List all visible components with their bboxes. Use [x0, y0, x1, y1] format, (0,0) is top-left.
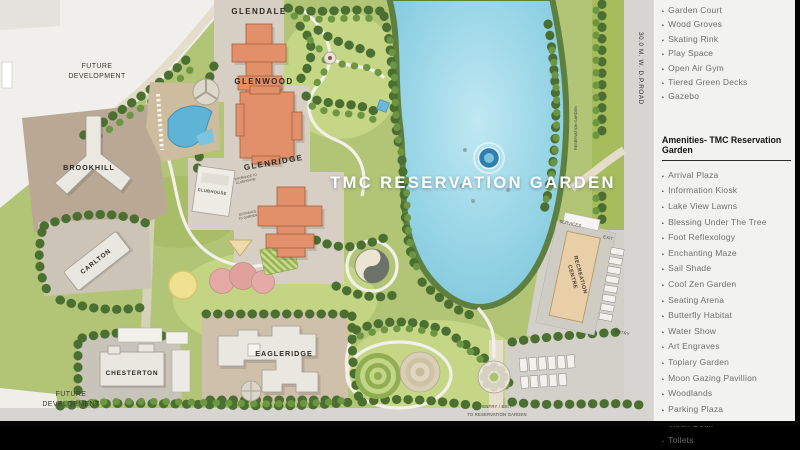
- amenity-label: Butterfly Habitat: [668, 309, 732, 323]
- amenity-label: Sail Shade: [668, 262, 711, 276]
- letterbox-right: [795, 0, 800, 426]
- amenity-item: ▪Skating Rink: [662, 33, 791, 47]
- amenity-item: ▪Information Kiosk: [662, 184, 791, 200]
- bullet-icon: ▪: [662, 64, 664, 76]
- yellow-lawn-circle: [169, 271, 197, 299]
- label-entry-exit-1: ENTRY / EXIT: [482, 404, 511, 409]
- amenity-label: Blessing Under The Tree: [668, 216, 766, 230]
- amenity-label: Parking Plaza: [668, 403, 723, 417]
- amenity-item: ▪Enchanting Maze: [662, 247, 791, 263]
- amenity-item: ▪Toilets: [662, 434, 791, 450]
- bullet-icon: ▪: [662, 358, 664, 372]
- amenity-label: Seating Arena: [668, 294, 724, 308]
- amenity-label: Topiary Garden: [668, 356, 729, 370]
- amenity-item: ▪Blessing Under The Tree: [662, 216, 791, 232]
- map-title: TMC RESERVATION GARDEN: [330, 174, 616, 192]
- bullet-icon: ▪: [662, 389, 664, 403]
- label-future-dev-top-2: DEVELOPMENT: [68, 73, 126, 80]
- pool-area: [146, 79, 220, 162]
- letterbox-bottom: [0, 421, 800, 426]
- amenity-label: Moon Gazing Pavillion: [668, 372, 757, 386]
- amenity-item: ▪Tiered Green Decks: [662, 76, 791, 90]
- label-glenwood: GLENWOOD: [234, 77, 293, 86]
- amenity-label: Information Kiosk: [668, 184, 737, 198]
- amenity-label: Toilets: [668, 434, 694, 448]
- bullet-icon: ▪: [662, 264, 664, 278]
- amenity-item: ▪Moon Gazing Pavillion: [662, 372, 791, 388]
- amenity-label: Enchanting Maze: [668, 247, 737, 261]
- topiary-circles: [355, 353, 401, 399]
- label-future-dev-top-1: FUTURE: [82, 63, 113, 70]
- amenity-item: ▪Play Space: [662, 47, 791, 61]
- amenity-item: ▪Water Show: [662, 325, 791, 341]
- bullet-icon: ▪: [662, 311, 664, 325]
- masterplan-screenshot: TMC RESERVATION GARDEN GLENDALE GLENWOOD…: [0, 0, 800, 426]
- amenity-item: ▪Lake View Lawns: [662, 200, 791, 216]
- label-future-dev-bottom-1: FUTURE: [56, 391, 87, 398]
- enchanting-maze: [478, 361, 510, 393]
- amenity-item: ▪Sail Shade: [662, 262, 791, 278]
- bullet-icon: ▪: [662, 374, 664, 388]
- label-future-dev-bottom-2: DEVELOPMENT: [42, 401, 100, 408]
- amenity-item: ▪Topiary Garden: [662, 356, 791, 372]
- bullet-icon: ▪: [662, 296, 664, 310]
- bullet-icon: ▪: [662, 249, 664, 263]
- amenity-label: Woodlands: [668, 387, 712, 401]
- amenity-label: Water Show: [668, 325, 716, 339]
- zen-garden: [355, 249, 389, 283]
- amenity-item: ▪Woodlands: [662, 387, 791, 403]
- label-glendale: GLENDALE: [231, 7, 286, 16]
- bullet-icon: ▪: [662, 20, 664, 32]
- label-entry-exit-2: TO RESERVATION GARDEN: [467, 412, 527, 417]
- amenity-label: Art Engraves: [668, 340, 720, 354]
- amenity-item: ▪Garden Court: [662, 4, 791, 18]
- bullet-icon: ▪: [662, 186, 664, 200]
- amenity-label: Skating Rink: [668, 33, 718, 45]
- amenity-label: Lake View Lawns: [668, 200, 737, 214]
- amenity-label: Foot Reflexology: [668, 231, 735, 245]
- bullet-icon: ▪: [662, 202, 664, 216]
- amenity-label: Wood Groves: [668, 18, 722, 30]
- amenities-list-main: ▪Arrival Plaza▪Information Kiosk▪Lake Vi…: [654, 165, 795, 450]
- label-eagleridge: EAGLERIDGE: [255, 349, 313, 358]
- amenity-label: Cool Zen Garden: [668, 278, 736, 292]
- bullet-icon: ▪: [662, 327, 664, 341]
- label-road: 30.0 M. W. D.P.ROAD: [637, 32, 644, 105]
- amenity-item: ▪Seating Arena: [662, 294, 791, 310]
- amenities-heading: Amenities- TMC Reservation Garden: [662, 135, 791, 155]
- bullet-icon: ▪: [662, 6, 664, 18]
- amenity-item: ▪Art Engraves: [662, 340, 791, 356]
- bullet-icon: ▪: [662, 49, 664, 61]
- site-map: TMC RESERVATION GARDEN GLENDALE GLENWOOD…: [0, 0, 653, 421]
- bullet-icon: ▪: [662, 35, 664, 47]
- amenity-label: Arrival Plaza: [668, 169, 718, 183]
- amenity-item: ▪Cool Zen Garden: [662, 278, 791, 294]
- amenity-label: Play Space: [668, 47, 713, 59]
- bullet-icon: ▪: [662, 436, 664, 450]
- amenity-item: ▪Arrival Plaza: [662, 169, 791, 185]
- bullet-icon: ▪: [662, 280, 664, 294]
- label-chesterton: CHESTERTON: [106, 370, 159, 377]
- amenity-item: ▪Wood Groves: [662, 18, 791, 32]
- amenity-item: ▪Gazebo: [662, 90, 791, 104]
- amenity-label: Gazebo: [668, 90, 699, 102]
- bullet-icon: ▪: [662, 92, 664, 104]
- label-brookhill: BROOKHILL: [63, 163, 115, 172]
- amenity-label: Tiered Green Decks: [668, 76, 747, 88]
- bullet-icon: ▪: [662, 342, 664, 356]
- amenity-item: ▪Foot Reflexology: [662, 231, 791, 247]
- amenity-label: Open Air Gym: [668, 62, 724, 74]
- amenities-list-top: ▪Garden Court▪Wood Groves▪Skating Rink▪P…: [654, 0, 795, 105]
- bullet-icon: ▪: [662, 171, 664, 185]
- heading-divider: [662, 160, 791, 161]
- sand-circles: [400, 352, 440, 392]
- amenity-label: Garden Court: [668, 4, 722, 16]
- amenity-item: ▪Parking Plaza: [662, 403, 791, 419]
- label-reservation-garden-edge: RESERVATION GARDEN: [574, 106, 578, 150]
- amenity-item: ▪Open Air Gym: [662, 62, 791, 76]
- bullet-icon: ▪: [662, 218, 664, 232]
- bullet-icon: ▪: [662, 405, 664, 419]
- bullet-icon: ▪: [662, 233, 664, 247]
- bottom-road: [0, 408, 653, 421]
- bullet-icon: ▪: [662, 78, 664, 90]
- site-map-svg: TMC RESERVATION GARDEN GLENDALE GLENWOOD…: [0, 0, 653, 421]
- amenities-sidebar: ▪Garden Court▪Wood Groves▪Skating Rink▪P…: [653, 0, 795, 421]
- amenity-item: ▪Butterfly Habitat: [662, 309, 791, 325]
